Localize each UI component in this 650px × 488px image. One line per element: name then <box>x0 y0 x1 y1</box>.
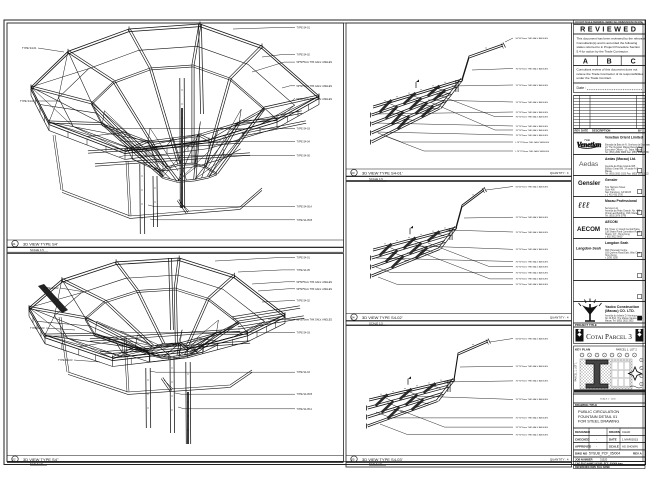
svg-text:3D VIEW TYPE S4-02': 3D VIEW TYPE S4-02' <box>362 315 403 320</box>
svg-text:REVIEWED: REVIEWED <box>580 25 638 34</box>
svg-text:TYPE S4-05 A: TYPE S4-05 A <box>297 205 313 208</box>
svg-text:t: 1 415 433 3700: t: 1 415 433 3700 <box>605 194 624 197</box>
svg-text:70*70*5mm THK GALV. ANGLES: 70*70*5mm THK GALV. ANGLES <box>516 216 549 219</box>
svg-text:DATE: DATE <box>581 129 588 133</box>
svg-text:QUANTITY : 4: QUANTITY : 4 <box>550 171 569 175</box>
svg-text:FOR STEEL DRAWING: FOR STEEL DRAWING <box>578 419 619 424</box>
svg-text:t: 852 3922 9000: t: 852 3922 9000 <box>605 236 623 239</box>
svg-text:DESIGNED: DESIGNED <box>575 430 590 434</box>
svg-text:Date :: Date : <box>577 86 587 90</box>
svg-text:3D VIEW TYPE S4-03': 3D VIEW TYPE S4-03' <box>362 457 403 462</box>
svg-text:SCALE 1 : 2000: SCALE 1 : 2000 <box>600 398 616 401</box>
svg-text:DRAWING TITLE: DRAWING TITLE <box>575 403 597 407</box>
svg-text:70*70*5mm THK GALV. ANGLES: 70*70*5mm THK GALV. ANGLES <box>516 398 549 401</box>
svg-text:PARCEL 1, LOT 1: PARCEL 1, LOT 1 <box>575 362 578 382</box>
svg-text:70*70*5mm THK GALV. ANGLES: 70*70*5mm THK GALV. ANGLES <box>516 266 549 269</box>
svg-text:TYPE S4-01: TYPE S4-01 <box>297 26 311 29</box>
svg-text:3D VIEW TYPE S4': 3D VIEW TYPE S4' <box>23 241 58 246</box>
svg-text:QUANTITY : 4: QUANTITY : 4 <box>550 316 569 320</box>
svg-text:70*70*5mm THK GALV. ANGLES: 70*70*5mm THK GALV. ANGLES <box>516 84 549 87</box>
svg-text:DESCRIPTION: DESCRIPTION <box>592 129 610 133</box>
svg-text:L75*75*6mm THK GALV. ANGLES: L75*75*6mm THK GALV. ANGLES <box>516 141 550 144</box>
svg-text:50*50*5mm THK GALV. ANGLES: 50*50*5mm THK GALV. ANGLES <box>516 37 549 40</box>
svg-text:KEY PLAN: KEY PLAN <box>575 348 590 352</box>
svg-text:Aedas (Macau) Ltd.: Aedas (Macau) Ltd. <box>605 157 636 161</box>
svg-text:TYPE S4-02: TYPE S4-02 <box>44 286 59 290</box>
svg-text:-: - <box>596 445 597 449</box>
svg-text:70*70*5mm THK GALV. ANGLES: 70*70*5mm THK GALV. ANGLES <box>516 111 549 114</box>
svg-text:04: 04 <box>351 315 355 319</box>
svg-text:TYPE S4-01: TYPE S4-01 <box>297 257 311 260</box>
svg-text:CHECKED: CHECKED <box>575 437 589 441</box>
svg-text:TYPE S4-03: TYPE S4-03 <box>58 358 73 362</box>
svg-text:CHAD: CHAD <box>622 430 630 434</box>
svg-text:TYPE S4-05 B: TYPE S4-05 B <box>297 219 313 222</box>
svg-text:70*70*5mm THK GALV. ANGLES: 70*70*5mm THK GALV. ANGLES <box>516 129 549 132</box>
svg-text:TYPE S4-05: TYPE S4-05 <box>297 155 311 158</box>
svg-text:DATE: DATE <box>609 437 617 441</box>
svg-text:TYPE S4-04: TYPE S4-04 <box>297 141 311 144</box>
svg-text:50*50*5mm THK GALV. ANGLES: 50*50*5mm THK GALV. ANGLES <box>516 337 549 340</box>
svg-text:COTAI PARCEL 3: COTAI PARCEL 3 <box>586 333 632 341</box>
svg-text:DRAWN: DRAWN <box>609 430 620 434</box>
svg-text:70*70*5mm THK GALV. ANGLES: 70*70*5mm THK GALV. ANGLES <box>516 283 549 286</box>
svg-text:DWG NO: DWG NO <box>575 452 588 456</box>
svg-text:70*70*5mm THK GALV. ANGLES: 70*70*5mm THK GALV. ANGLES <box>516 271 549 274</box>
svg-text:SCALE 1:5: SCALE 1:5 <box>30 462 43 466</box>
svg-text:SCALE 1:5: SCALE 1:5 <box>369 462 382 466</box>
svg-text:-: - <box>596 437 597 441</box>
svg-text:TYPE S4-02: TYPE S4-02 <box>20 99 35 103</box>
svg-text:SCALE: SCALE <box>609 445 619 449</box>
svg-text:05: 05 <box>351 457 355 461</box>
svg-text:(Macau) CO. LTD.: (Macau) CO. LTD. <box>605 309 635 313</box>
svg-text:70*70*5mm THK GALV. ANGLES: 70*70*5mm THK GALV. ANGLES <box>516 260 549 263</box>
svg-text:TYPE S4-05 B: TYPE S4-05 B <box>297 393 313 396</box>
svg-text:50*50*5mm THK GALV. ANGLES: 50*50*5mm THK GALV. ANGLES <box>297 318 333 321</box>
svg-text:AS SHOWN: AS SHOWN <box>622 445 638 449</box>
svg-text:Venetian Orient Limited: Venetian Orient Limited <box>605 136 643 140</box>
svg-text:70*70*5mm THK GALV. ANGLES: 70*70*5mm THK GALV. ANGLES <box>516 426 549 429</box>
svg-text:3D VIEW TYPE S4'': 3D VIEW TYPE S4'' <box>23 457 59 462</box>
svg-text:A: A <box>583 59 588 66</box>
svg-text:TYPE S4-03: TYPE S4-03 <box>297 128 311 131</box>
svg-text:70*70*5mm THK GALV. ANGLES: 70*70*5mm THK GALV. ANGLES <box>516 248 549 251</box>
svg-text:70*70*5mm THK GALV. ANGLES: 70*70*5mm THK GALV. ANGLES <box>516 365 549 368</box>
svg-text:REFERENCE DWG FILE NAME: REFERENCE DWG FILE NAME <box>575 466 610 469</box>
svg-text:70*70*5mm THK GALV. ANGLES: 70*70*5mm THK GALV. ANGLES <box>516 278 549 281</box>
svg-text:PROJECT TITLE: PROJECT TITLE <box>575 323 597 327</box>
svg-text:TYPE S4-01: TYPE S4-01 <box>22 46 37 50</box>
svg-text:PARCEL 1, LOT 2: PARCEL 1, LOT 2 <box>616 348 637 352</box>
svg-text:02: 02 <box>12 457 16 461</box>
svg-text:31520: 31520 <box>600 457 608 461</box>
svg-text:50*50*5mm THK GALV. ANGLES: 50*50*5mm THK GALV. ANGLES <box>297 98 333 101</box>
svg-text:70*70*5mm THK GALV. ANGLES: 70*70*5mm THK GALV. ANGLES <box>516 417 549 420</box>
svg-text:BY: BY <box>638 129 642 133</box>
svg-text:Gensler: Gensler <box>605 178 618 182</box>
svg-text:Gensler: Gensler <box>578 181 601 187</box>
svg-text:1 MAR/2015: 1 MAR/2015 <box>622 437 638 441</box>
svg-text:TYPE S4-05 A: TYPE S4-05 A <box>297 408 313 411</box>
svg-text:under the Trade Contract.: under the Trade Contract. <box>577 76 612 80</box>
svg-text:50*50*5mm THK GALV. ANGLES: 50*50*5mm THK GALV. ANGLES <box>297 281 333 284</box>
svg-text:70*70*5mm THK GALV. ANGLES: 70*70*5mm THK GALV. ANGLES <box>516 433 549 436</box>
svg-text:5.4 for action by the Trade Co: 5.4 for action by the Trade Contractor. <box>577 49 629 53</box>
svg-text:L75*75*6mm THK GALV. ANGLES: L75*75*6mm THK GALV. ANGLES <box>516 150 550 153</box>
svg-text:REV: REV <box>575 129 581 133</box>
svg-text:3D VIEW TYPE S4-01': 3D VIEW TYPE S4-01' <box>362 170 403 175</box>
svg-text:5YSUB_PCF_05/004: 5YSUB_PCF_05/004 <box>589 452 620 456</box>
svg-text:50*50*5mm THK GALV. ANGLES: 50*50*5mm THK GALV. ANGLES <box>516 185 549 188</box>
svg-text:TYPE S4-02: TYPE S4-02 <box>297 53 311 56</box>
svg-text:THE: THE <box>584 138 591 142</box>
svg-text:70*70*5mm THK GALV. ANGLES: 70*70*5mm THK GALV. ANGLES <box>516 231 549 234</box>
svg-text:AECOM: AECOM <box>605 220 618 224</box>
svg-text:50*50*5mm THK GALV. ANGLES: 50*50*5mm THK GALV. ANGLES <box>297 288 333 291</box>
svg-text:70*70*5mm THK GALV. ANGLES: 70*70*5mm THK GALV. ANGLES <box>516 380 549 383</box>
svg-text:ℓℓℓ: ℓℓℓ <box>578 200 590 210</box>
svg-text:TYPE S4-03: TYPE S4-03 <box>30 326 45 330</box>
svg-text:Langdon·Seah: Langdon·Seah <box>576 247 602 251</box>
svg-text:TYPE S4-02: TYPE S4-02 <box>297 300 311 303</box>
svg-text:SCALE 1:5: SCALE 1:5 <box>369 177 383 181</box>
svg-text:C: C <box>631 59 636 66</box>
svg-text:Aedas: Aedas <box>579 161 599 168</box>
svg-text:50*50*5mm THK GALV. ANGLES: 50*50*5mm THK GALV. ANGLES <box>297 85 333 88</box>
svg-text:70*70*5mm THK GALV. ANGLES: 70*70*5mm THK GALV. ANGLES <box>516 115 549 118</box>
svg-text:03: 03 <box>351 171 355 175</box>
svg-text:70*70*5mm THK GALV. ANGLES: 70*70*5mm THK GALV. ANGLES <box>516 67 549 70</box>
svg-text:t: 2830 3500: t: 2830 3500 <box>605 257 618 260</box>
svg-text:REV A: REV A <box>633 452 643 456</box>
svg-text:70*70*5mm THK GALV. ANGLES: 70*70*5mm THK GALV. ANGLES <box>516 134 549 137</box>
svg-text:Langdon Seah: Langdon Seah <box>605 241 628 245</box>
svg-text:APPROVED: APPROVED <box>575 445 591 449</box>
svg-text:AECOM: AECOM <box>577 226 600 233</box>
svg-text:70*70*5mm THK GALV. ANGLES: 70*70*5mm THK GALV. ANGLES <box>516 125 549 128</box>
svg-text:Macau Professional: Macau Professional <box>605 199 637 203</box>
svg-text:DO NOT SCALE DRAWING. VERIFY A: DO NOT SCALE DRAWING. VERIFY ALL DIMENSI… <box>575 20 643 24</box>
svg-text:Tel: (853) 2882 8888 Fax: (8: Tel: (853) 2882 8888 Fax: (853) 2882 888… <box>605 152 649 154</box>
svg-text:70*70*5mm THK GALV. ANGLES: 70*70*5mm THK GALV. ANGLES <box>516 101 549 104</box>
svg-text:B: B <box>607 59 612 66</box>
svg-text:TYPE S4-04: TYPE S4-04 <box>297 371 311 374</box>
svg-text:50*50*5mm THK GALV. ANGLES: 50*50*5mm THK GALV. ANGLES <box>297 61 333 64</box>
svg-text:SCALE 1:5: SCALE 1:5 <box>30 248 44 252</box>
svg-text:QUANTITY : 4: QUANTITY : 4 <box>550 458 569 462</box>
svg-text:Macau Tel: (853) 2832 2832: Macau Tel: (853) 2832 2832 <box>605 320 634 322</box>
svg-text:01: 01 <box>12 242 16 246</box>
svg-text:TYPE S4-05: TYPE S4-05 <box>297 269 311 272</box>
svg-text:TYPE S4-03: TYPE S4-03 <box>297 332 311 335</box>
svg-text:JOB NUMBER: JOB NUMBER <box>575 457 593 461</box>
